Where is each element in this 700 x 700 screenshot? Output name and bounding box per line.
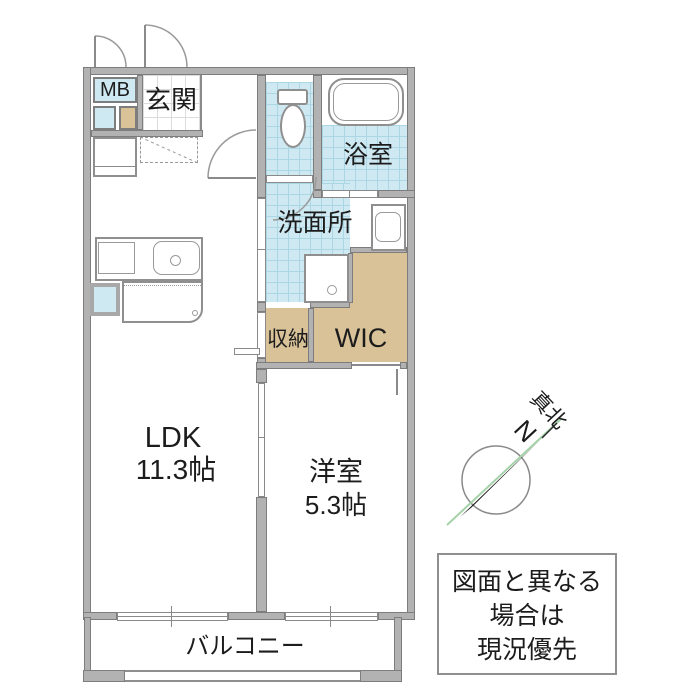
toilet-door bbox=[266, 175, 313, 183]
wall bbox=[83, 67, 91, 617]
notice-line: 図面と異なる bbox=[439, 565, 615, 599]
washing-machine-pan bbox=[304, 254, 349, 303]
meter-box-label: MB bbox=[100, 79, 130, 102]
wall bbox=[257, 75, 266, 198]
washroom-door-divider bbox=[257, 249, 266, 250]
wall bbox=[256, 362, 352, 369]
refrigerator-space bbox=[90, 283, 120, 316]
wall bbox=[256, 369, 267, 383]
counter-dotted-line bbox=[124, 285, 201, 286]
wall bbox=[256, 497, 267, 612]
wall bbox=[313, 190, 322, 198]
balcony-railing bbox=[83, 670, 402, 682]
storage-label: 収納 bbox=[267, 328, 309, 351]
notice-line: 場合は bbox=[439, 599, 615, 633]
entrance-door-arc bbox=[145, 25, 187, 67]
window-glass-line bbox=[118, 616, 227, 617]
toilet-tank bbox=[277, 89, 308, 105]
bath-sliding-door bbox=[322, 190, 378, 198]
wic-door-leaf bbox=[396, 369, 398, 395]
washroom-label: 洗面所 bbox=[277, 210, 352, 238]
toilet-bowl bbox=[280, 104, 306, 148]
vanity-sink bbox=[375, 212, 401, 242]
pipe-space bbox=[93, 106, 116, 130]
window-glass-line bbox=[286, 616, 377, 617]
balcony-railing-corner bbox=[83, 670, 125, 682]
ldk-size-label: 11.3帖 bbox=[136, 455, 216, 486]
wall bbox=[228, 612, 285, 620]
compass-needle bbox=[460, 438, 542, 517]
meter-box: MB bbox=[93, 77, 137, 103]
washroom-sliding-door bbox=[257, 198, 266, 302]
entry-closet bbox=[119, 106, 137, 130]
kitchen-stove bbox=[98, 242, 135, 274]
shoe-cabinet bbox=[93, 137, 137, 177]
genkan-label: 玄関 bbox=[145, 86, 197, 115]
shoe-cabinet-line bbox=[94, 166, 136, 167]
notice-line: 現況優先 bbox=[439, 633, 615, 667]
wall bbox=[407, 67, 415, 620]
window-tick bbox=[330, 606, 331, 627]
ldk-label: LDK bbox=[145, 423, 201, 455]
balcony-side-wall bbox=[84, 617, 91, 673]
kitchen-lower-counter bbox=[122, 281, 203, 323]
drain-circle bbox=[327, 285, 337, 295]
room-sliding-door bbox=[258, 383, 265, 497]
wall bbox=[313, 75, 322, 190]
wall bbox=[91, 130, 203, 137]
wall bbox=[137, 75, 143, 130]
wall bbox=[83, 67, 415, 75]
bath-door-divider bbox=[349, 190, 350, 198]
wall bbox=[378, 190, 415, 198]
room-door-divider bbox=[258, 437, 265, 438]
mb-door-arc bbox=[95, 36, 126, 67]
wic-floor-upper bbox=[350, 253, 407, 308]
compass-green-line bbox=[447, 418, 562, 525]
storage-door-leaf bbox=[234, 348, 260, 355]
western-room-label: 洋室 bbox=[309, 458, 363, 488]
bath-label: 浴室 bbox=[343, 142, 393, 170]
genkan-step-line bbox=[200, 75, 202, 130]
faucet-circle bbox=[170, 255, 181, 266]
window-tick bbox=[171, 606, 172, 627]
wic-door-line bbox=[352, 364, 400, 366]
compass-circle bbox=[462, 446, 530, 514]
balcony-label: バルコニー bbox=[185, 634, 305, 660]
western-room-size-label: 5.3帖 bbox=[305, 491, 367, 520]
overhead-storage bbox=[140, 137, 198, 163]
counter-circle bbox=[192, 310, 198, 316]
bathtub-inner bbox=[333, 83, 399, 121]
balcony-side-wall bbox=[394, 617, 402, 673]
hall-door-arc bbox=[208, 130, 256, 178]
notice-box: 図面と異なる 場合は 現況優先 bbox=[437, 553, 617, 675]
wall bbox=[400, 362, 407, 369]
wic-label: WIC bbox=[335, 324, 387, 354]
balcony-railing-corner bbox=[360, 670, 402, 682]
wall bbox=[257, 302, 266, 312]
floor-plan: MB 玄関 浴室 洗面所 収納 WIC LDK 11.3帖 洋室 5 bbox=[0, 0, 700, 700]
